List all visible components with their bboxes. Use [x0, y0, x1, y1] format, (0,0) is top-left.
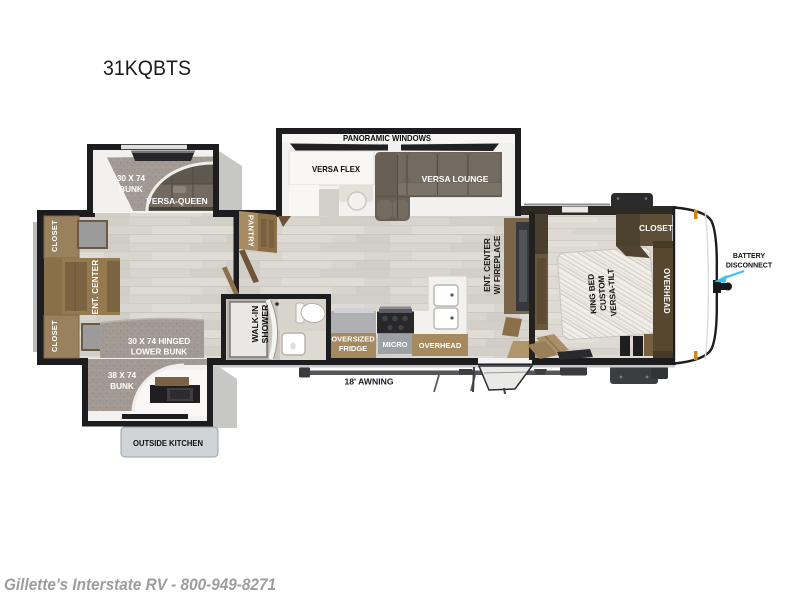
svg-text:OUTSIDE KITCHEN: OUTSIDE KITCHEN — [133, 438, 203, 448]
svg-text:WALK-INSHOWER: WALK-INSHOWER — [250, 304, 270, 343]
svg-text:OVERHEAD: OVERHEAD — [662, 268, 671, 314]
svg-text:BATTERY: BATTERY — [733, 253, 766, 260]
svg-text:DISCONNECT: DISCONNECT — [726, 263, 773, 270]
svg-text:30 X 74 HINGED: 30 X 74 HINGED — [128, 337, 190, 346]
svg-text:31KQBTS: 31KQBTS — [103, 57, 191, 80]
svg-text:KING BEDCUSTOMVERSA-TILT: KING BEDCUSTOMVERSA-TILT — [586, 268, 618, 318]
svg-text:30 X 74: 30 X 74 — [117, 174, 146, 183]
svg-text:ENT. CENTER: ENT. CENTER — [91, 260, 100, 315]
svg-text:OVERSIZED: OVERSIZED — [331, 335, 375, 344]
svg-text:18' AWNING: 18' AWNING — [345, 377, 394, 387]
svg-text:VERSA-QUEEN: VERSA-QUEEN — [146, 196, 207, 206]
svg-text:Gillette's Interstate RV - 800: Gillette's Interstate RV - 800-949-8271 — [4, 576, 276, 594]
svg-text:VERSA LOUNGE: VERSA LOUNGE — [422, 174, 489, 184]
svg-text:PANTRY: PANTRY — [247, 215, 256, 247]
svg-text:CLOSET: CLOSET — [50, 220, 59, 252]
svg-text:38 X 74: 38 X 74 — [108, 371, 137, 380]
svg-text:PANORAMIC WINDOWS: PANORAMIC WINDOWS — [343, 134, 432, 143]
svg-text:FRIDGE: FRIDGE — [339, 344, 367, 353]
svg-text:ENT. CENTERW/ FIREPLACE: ENT. CENTERW/ FIREPLACE — [483, 235, 502, 294]
svg-text:OVERHEAD: OVERHEAD — [419, 341, 462, 350]
svg-text:CLOSET: CLOSET — [50, 320, 59, 352]
svg-text:CLOSET: CLOSET — [639, 223, 674, 233]
svg-text:BUNK: BUNK — [119, 185, 143, 194]
svg-text:VERSA FLEX: VERSA FLEX — [312, 164, 360, 174]
svg-text:BUNK: BUNK — [110, 382, 134, 391]
svg-text:LOWER BUNK: LOWER BUNK — [131, 348, 187, 357]
svg-text:MICRO: MICRO — [383, 340, 408, 349]
